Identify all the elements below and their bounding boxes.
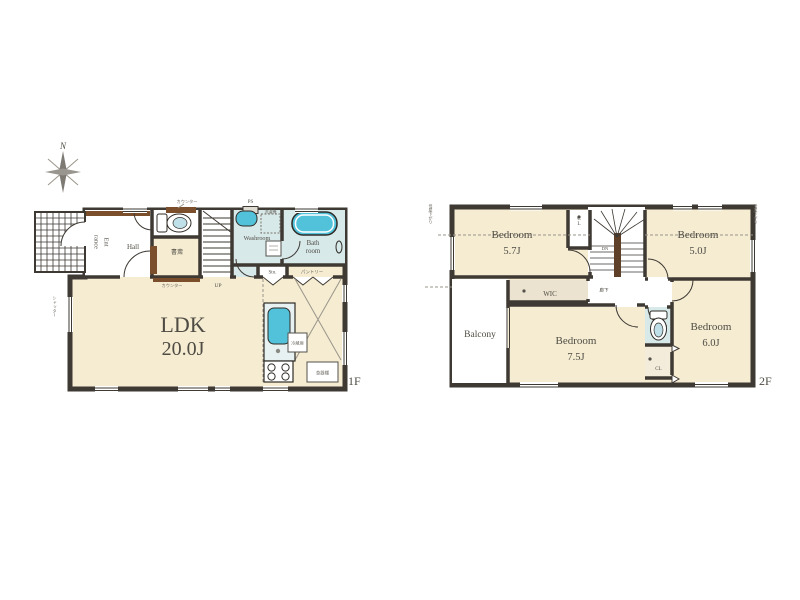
compass-rose: N xyxy=(45,141,81,193)
room-closet-bottom xyxy=(645,345,672,378)
stove-icon xyxy=(264,361,293,382)
wic-label: WIC xyxy=(543,290,557,298)
bath-door-handle xyxy=(336,241,342,253)
closet-top-label: CL xyxy=(576,217,581,227)
floorplan-canvas: N xyxy=(0,0,800,600)
bedroom-ne-size: 5.0J xyxy=(689,246,706,257)
bedroom-s-size: 7.5J xyxy=(567,352,584,363)
bedroom-ne-label: Bedroom xyxy=(678,229,719,241)
laundry-label: 洗濯機 xyxy=(265,208,277,214)
bedroom-s-label: Bedroom xyxy=(556,335,597,347)
counter-top-label: カウンター xyxy=(177,198,198,205)
stairs-up-label: UP xyxy=(214,283,221,289)
ldk-size-label: 20.0J xyxy=(162,338,205,360)
floor-1f-plan: 冷蔵庫 食器棚 カウンター PS 洗濯機 Washroom Bath room … xyxy=(35,198,361,392)
closet-bottom-pole-dot xyxy=(648,357,651,360)
wic-pole-dot xyxy=(522,289,525,292)
study-label: 書斎 xyxy=(171,248,183,256)
bedroom-nw-label: Bedroom xyxy=(492,229,533,241)
counter-bottom-label: カウンター xyxy=(162,282,183,289)
washroom-sink-icon xyxy=(236,211,257,226)
balcony-label: Balcony xyxy=(464,330,496,340)
bedroom-se-label: Bedroom xyxy=(691,321,732,333)
washroom-cabinet-box xyxy=(266,241,281,256)
toilet-icon-1f xyxy=(157,214,191,232)
floor-label-1f: 1F xyxy=(348,374,361,388)
floor-2f-plan: 母屋下がり 母屋下がり Bedroom 5.7J CL DN Bedroom 5… xyxy=(425,204,772,388)
entrance-label-1: Ent xyxy=(103,237,110,246)
pantry-label: パントリー xyxy=(301,270,323,276)
toilet-counter-strip xyxy=(166,207,196,213)
floorplan-image: N xyxy=(0,0,800,600)
closet-bottom-label: CL xyxy=(655,367,661,372)
kitchen-sink-icon xyxy=(268,308,290,344)
storage-label: Sto. xyxy=(269,271,277,276)
bathroom-label-2: room xyxy=(306,248,321,255)
bedroom-se-size: 6.0J xyxy=(702,338,719,349)
cupboard-label: 食器棚 xyxy=(316,370,330,377)
floor-label-2f: 2F xyxy=(759,374,772,388)
hall-label: Hall xyxy=(127,243,139,251)
slope-note-right: 母屋下がり xyxy=(754,204,759,225)
shutter-note: シャッター xyxy=(53,296,58,317)
ps-label: PS xyxy=(248,200,254,205)
study-door-panel xyxy=(150,246,157,274)
washroom-label: Washroom xyxy=(244,235,271,242)
bedroom-nw-size: 5.7J xyxy=(503,246,520,257)
refrigerator-label: 冷蔵庫 xyxy=(291,340,304,347)
slope-note-left: 母屋下がり xyxy=(429,204,434,225)
faucet-dot xyxy=(276,349,280,353)
ldk-label: LDK xyxy=(160,312,205,337)
compass-n-label: N xyxy=(59,141,67,151)
bathroom-label-1: Bath xyxy=(307,240,320,247)
hallway-label: 廊下 xyxy=(600,287,609,294)
entrance-label-2: rance xyxy=(93,235,100,249)
toilet-icon-2f xyxy=(650,311,667,340)
study-counter-desk xyxy=(153,278,200,282)
stairs-dn-label: DN xyxy=(602,246,609,251)
compass-needle-ew xyxy=(45,169,81,176)
room-stairs-1f xyxy=(200,210,232,277)
